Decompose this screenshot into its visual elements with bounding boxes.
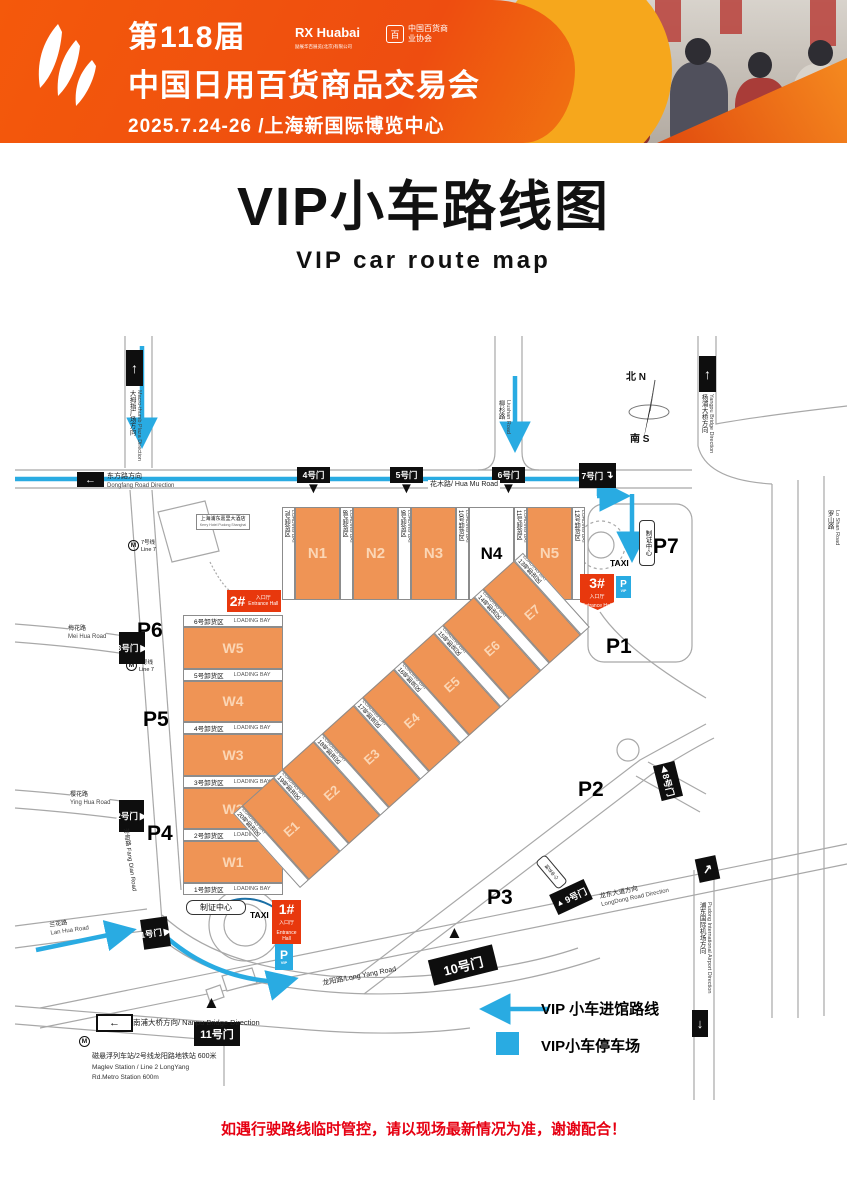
gate-8-arrow-icon: ◀ [660, 765, 670, 773]
fair-title: 中国日用百货商品交易会 [128, 60, 480, 105]
organizer-logo-name: RX Huabai [295, 25, 360, 40]
road-label-loshan: 罗山路Lo Shan Road [826, 510, 840, 545]
entrance-hall-1: 1# 入口厅 Entrance Hall [272, 900, 301, 944]
road-label-dongfang: 东方路方向Dongfang Road Direction [107, 472, 174, 491]
photo-person-head [748, 52, 772, 78]
taxi-label: TAXI [250, 910, 269, 920]
header-orange-panel: 第118届 中国日用百货商品交易会 2025.7.24-26 /上海新国际博览中… [0, 0, 575, 143]
compass-south-label: 南 S [630, 430, 649, 445]
vip-route-lines [15, 346, 632, 1009]
down-arrow-icon: ↓ [697, 1016, 704, 1031]
gate-arrow-right-icon: ▶ [140, 643, 147, 654]
gate-1: 1号门▶ [140, 916, 171, 949]
road-label-airport: 浦东国际机场方向Pudong International Airport Dir… [698, 902, 712, 993]
header-banner: 第118届 中国日用百货商品交易会 2025.7.24-26 /上海新国际博览中… [0, 0, 847, 143]
road-label-liushan: 柳杉路Liushan Road [497, 400, 511, 434]
taxi-label: TAXI [610, 558, 629, 568]
vip-parking-icon: PVIP [616, 576, 631, 598]
gate-6-arrow-down-icon: ▼ [501, 481, 516, 496]
footer-notice: 如遇行驶路线临时管控，请以现场最新情况为准，谢谢配合！ [0, 1118, 847, 1139]
photo-banner [720, 0, 742, 34]
title-block: VIP小车路线图 VIP car route map [0, 162, 847, 275]
hall-n3: N3 [411, 507, 456, 600]
parking-p5: P5 [143, 708, 169, 732]
road-label-huamu: 花木路/ Hua Mu Road [428, 480, 500, 489]
legend-parking-label: VIP小车停车场 [541, 1035, 640, 1056]
metro-line7-mark: M 7号线Line 7 [126, 660, 154, 673]
hall-w5: W5 [183, 627, 283, 669]
association-logo-name: 中国百货商业协会 [408, 24, 448, 44]
loading-bay-10: 10号卸货区LOADING BAY [456, 507, 469, 600]
parking-p3: P3 [487, 886, 513, 910]
hall-w3: W3 [183, 734, 283, 776]
page-title-zh: VIP小车路线图 [0, 162, 847, 241]
metro-icon: M [128, 540, 139, 551]
gate-7: 7号门↴ [579, 463, 616, 488]
metro-icon: M [79, 1036, 90, 1047]
legend-route-label: VIP 小车进馆路线 [541, 998, 659, 1019]
loading-bay-4: 4号卸货区LOADING BAY [183, 722, 283, 734]
yangpu-direction-sign: ↑ [699, 356, 716, 392]
gate-5-arrow-down-icon: ▼ [399, 481, 414, 496]
maglev-station-note: 磁悬浮列车站/2号线龙阳路地铁站 600米 Maglev Station / L… [92, 1052, 216, 1084]
cert-center-p7: 制证中心 [639, 520, 655, 566]
left-arrow-icon: ← [109, 1017, 120, 1029]
metro-icon: M [126, 660, 137, 671]
parking-p4: P4 [147, 822, 173, 846]
parking-p2: P2 [578, 778, 604, 802]
gate-arrow-right-icon: ▶ [163, 925, 171, 937]
gate-11-arrow-up-icon: ▲ [203, 994, 220, 1011]
loading-bay-5: 5号卸货区LOADING BAY [183, 669, 283, 681]
gate-2: 2号门▶ [119, 800, 144, 832]
parking-p7: P7 [653, 535, 679, 559]
organizer-logo-sub: 励展华百展览(北京)有限公司 [295, 44, 360, 50]
fair-date-venue: 2025.7.24-26 /上海新国际博览中心 [128, 111, 480, 138]
association-logo-icon: 百 [386, 25, 404, 43]
legend-parking-swatch [496, 1032, 519, 1055]
left-arrow-icon: ← [85, 474, 96, 486]
road-label-thumb-plaza: 大拇指广场方向Macro-thumb Plaza Direction [128, 390, 142, 461]
hall-n2: N2 [353, 507, 398, 600]
road-label-nanpu: 南浦大桥方向/ Nanpu Bridge Direction [133, 1018, 260, 1028]
organizer-logo: RX Huabai 励展华百展览(北京)有限公司 [295, 24, 360, 50]
airport-direction-sign: ↓ [692, 1010, 708, 1037]
thumb-plaza-direction-sign: ↑ [126, 350, 143, 386]
road-label-yinghua: 樱花路Ying Hua Road [70, 792, 110, 808]
loading-bay-6: 6号卸货区LOADING BAY [183, 615, 283, 627]
cert-center-south: 制证中心 [186, 900, 246, 915]
gate-arrow-right-icon: ▶ [140, 811, 147, 822]
parking-p1: P1 [606, 635, 632, 659]
dongfang-direction-sign: ← [77, 472, 104, 487]
loading-bay-9: 9号卸货区LOADING BAY [398, 507, 411, 600]
nanpu-direction-sign: ← [96, 1014, 133, 1032]
gate-10-arrow-up-icon: ▲ [446, 924, 463, 941]
loading-bay-8: 8号卸货区LOADING BAY [340, 507, 353, 600]
kerry-hotel-label: 上海浦东嘉里大酒店 Kerry Hotel Pudong Shanghai [196, 514, 250, 530]
vip-parking-icon: PVIP [275, 944, 293, 970]
fair-logo [28, 22, 108, 122]
metro-line7-mark: M 7号线Line 7 [128, 540, 156, 553]
entrance-hall-2: 2# 入口厅Entrance Hall [227, 590, 281, 612]
association-logo: 百 中国百货商业协会 [386, 24, 448, 44]
up-arrow-icon: ↑ [704, 366, 711, 382]
gate-4-arrow-down-icon: ▼ [306, 481, 321, 496]
loading-bay-1: 1号卸货区LOADING BAY [183, 883, 283, 895]
loading-bay-7: 7号卸货区LOADING BAY [282, 507, 295, 600]
compass-north-label: 北 N [626, 368, 646, 383]
road-label-meihua: 梅花路Mei Hua Road [68, 626, 106, 642]
up-arrow-icon: ↑ [131, 360, 138, 376]
hall-n1: N1 [295, 507, 340, 600]
ne-arrow-icon: ↗ [701, 861, 714, 877]
gate-7-turn-arrow-icon: ↴ [605, 470, 613, 481]
hall-w4: W4 [183, 681, 283, 723]
metro-icon-maglev: M [79, 1036, 90, 1047]
photo-banner [810, 0, 836, 46]
road-label-yangpu: 杨浦大桥方向Yangpu Bridge Direction [700, 394, 714, 453]
photo-person-head [808, 40, 833, 66]
page-title-en: VIP car route map [0, 247, 847, 275]
photo-person-head [685, 38, 711, 65]
vip-route-map: 北 N 南 S 7号卸货区LOADING BAY N1 8号卸货区LOADING… [0, 330, 847, 1100]
page: 第118届 中国日用百货商品交易会 2025.7.24-26 /上海新国际博览中… [0, 0, 847, 1197]
